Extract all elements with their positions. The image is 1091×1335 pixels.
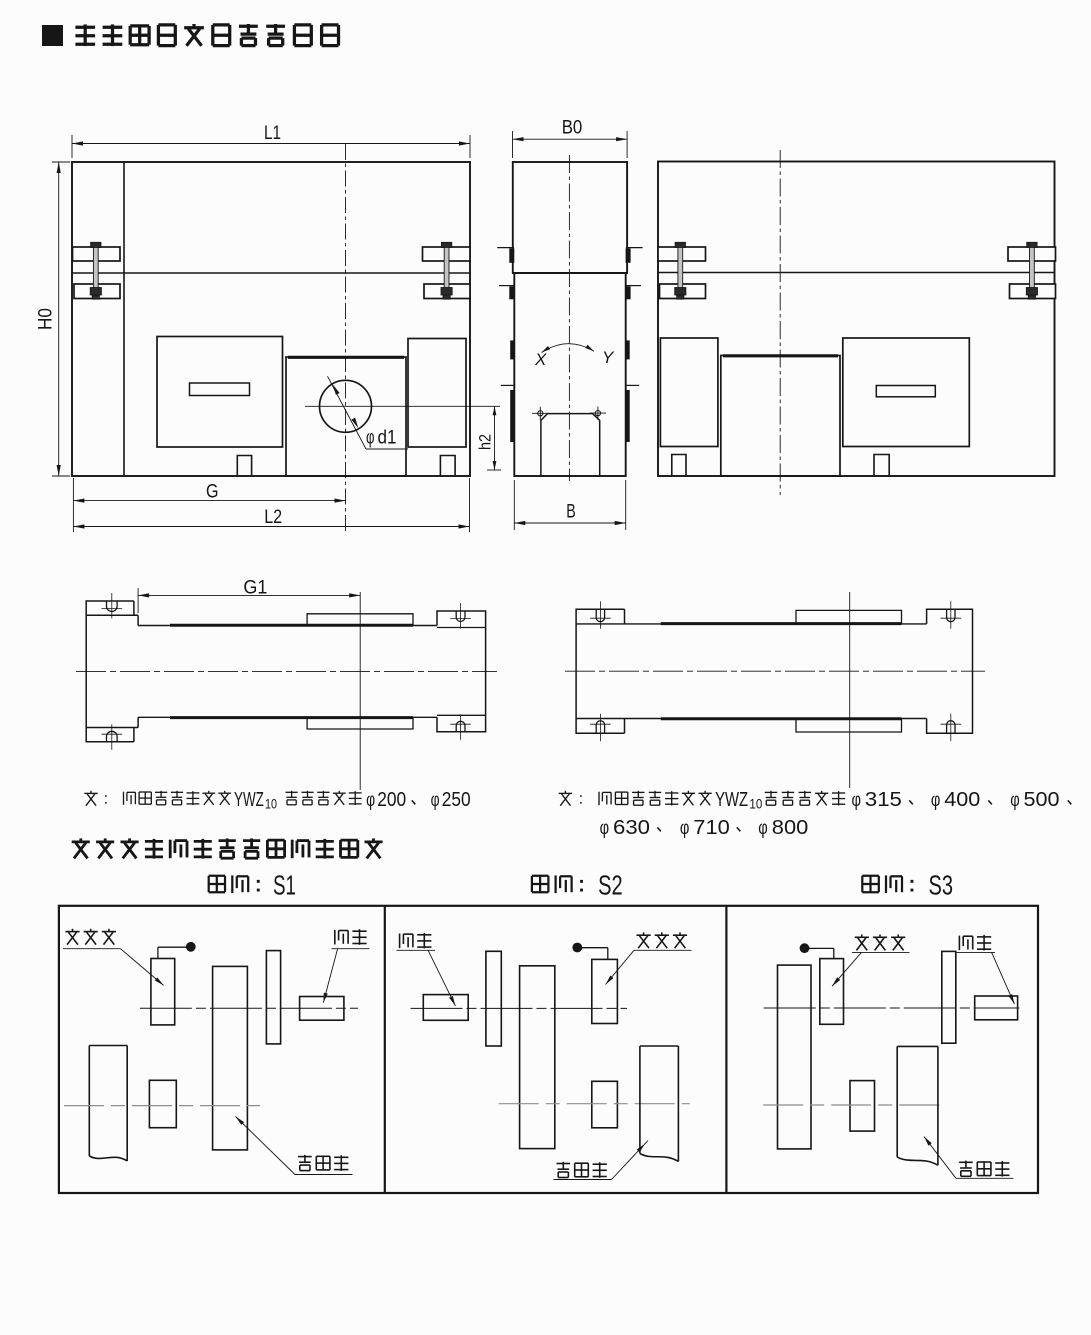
svg-text:L2: L2 [264,507,282,528]
svg-text:H0: H0 [36,308,57,330]
svg-text:d1: d1 [378,428,397,449]
svg-text:X: X [534,350,547,369]
svg-text:800: 800 [772,817,809,839]
svg-text:10: 10 [749,796,762,812]
svg-text:315: 315 [865,789,902,811]
svg-text:S3: S3 [929,870,954,901]
svg-text:710: 710 [693,817,730,839]
svg-text:S2: S2 [598,870,623,901]
svg-text:YWZ: YWZ [715,789,748,811]
svg-text:φ: φ [680,818,690,839]
svg-text:φ: φ [931,790,941,811]
svg-text:L1: L1 [264,123,281,144]
svg-text:500: 500 [1024,789,1060,811]
svg-text:10: 10 [265,796,277,812]
svg-text:φ: φ [1010,790,1020,811]
svg-text:φ: φ [431,790,440,811]
svg-text:S1: S1 [273,870,296,901]
svg-text:G: G [206,481,219,502]
svg-text:φ: φ [366,428,375,449]
svg-text:630: 630 [613,817,650,839]
svg-text:250: 250 [442,789,471,811]
svg-text:YWZ: YWZ [234,789,264,811]
svg-text:φ: φ [852,790,862,811]
svg-text:φ: φ [600,818,610,839]
svg-text:φ: φ [758,818,768,839]
svg-text:200: 200 [377,789,406,811]
svg-text:B0: B0 [562,117,583,138]
svg-text:h2: h2 [476,434,495,450]
svg-text:φ: φ [366,790,375,811]
svg-text:400: 400 [944,789,980,811]
svg-text:G1: G1 [243,578,267,599]
svg-text:Y: Y [602,348,615,367]
svg-text:B: B [566,502,576,523]
